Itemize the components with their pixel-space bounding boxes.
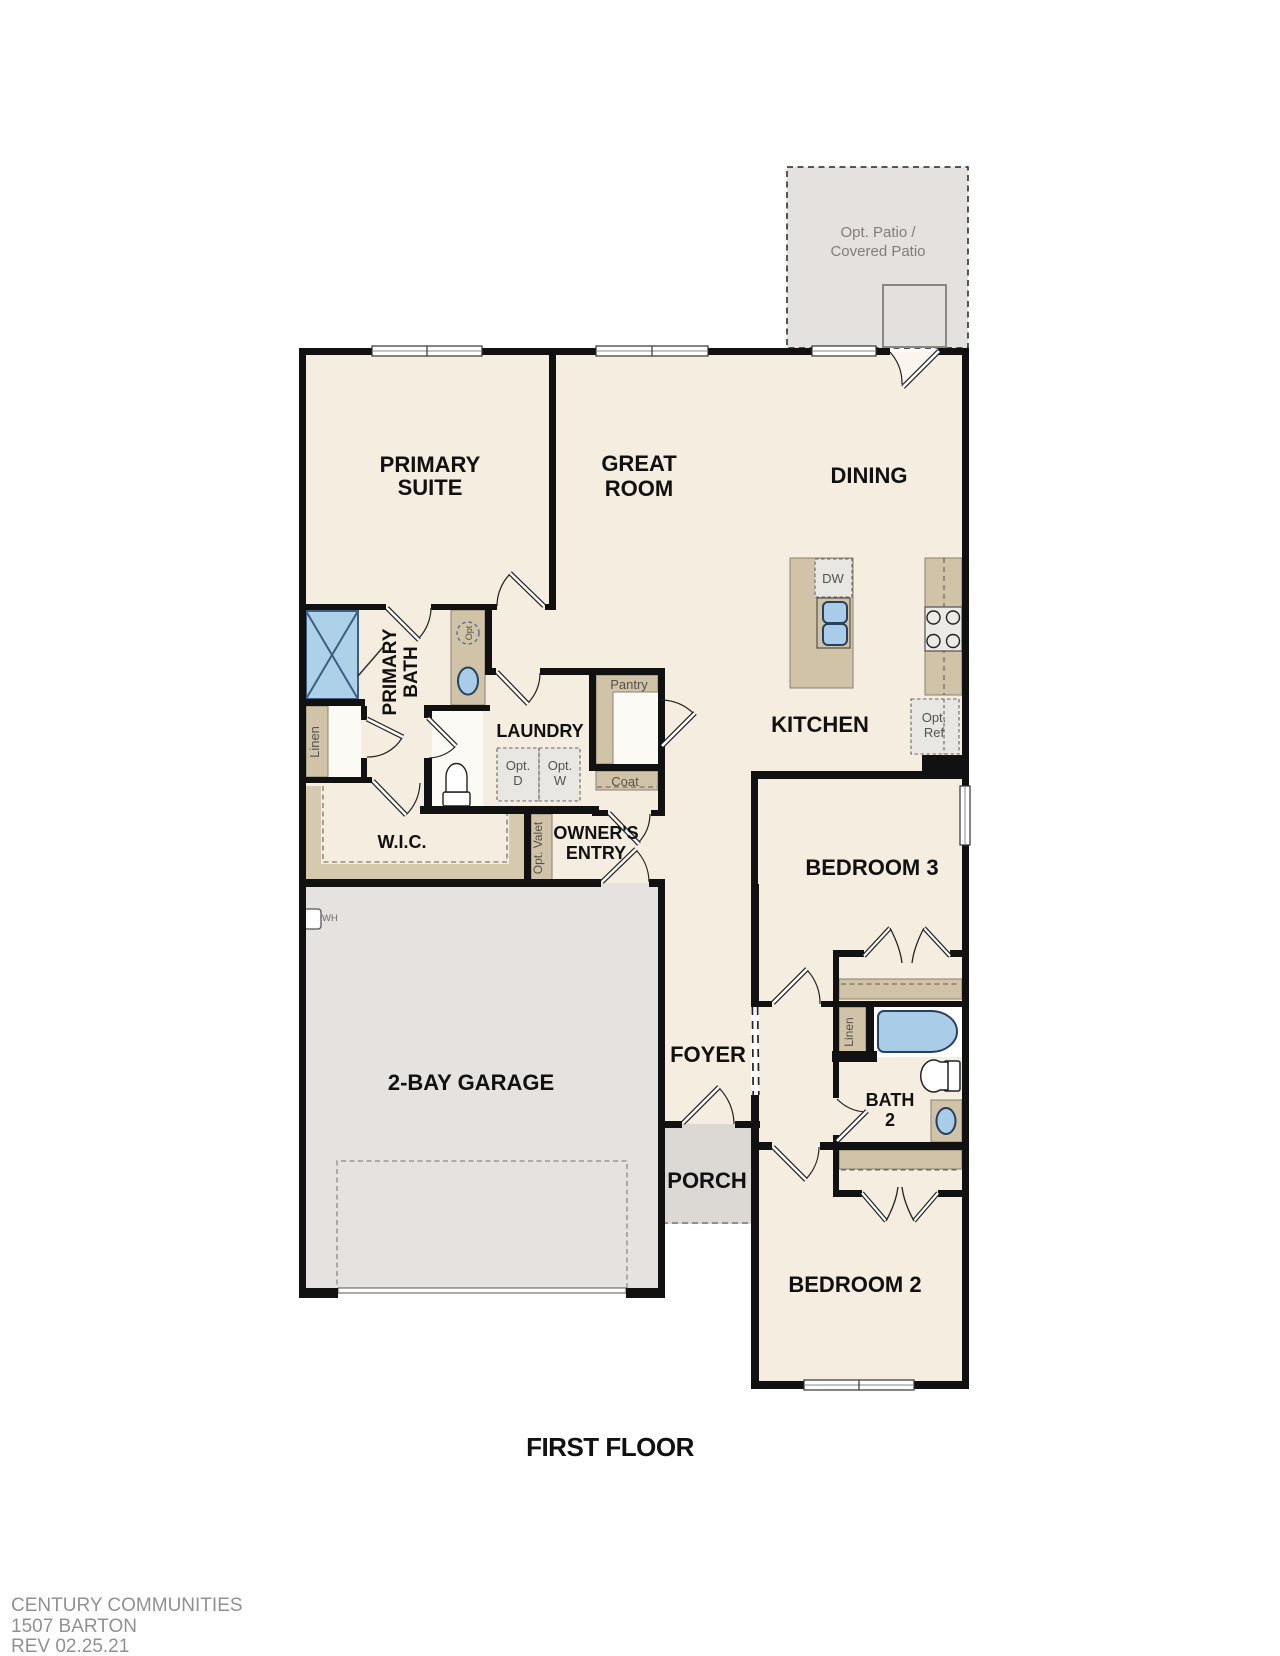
svg-text:Opt: Opt — [464, 625, 474, 640]
svg-text:Opt.: Opt. — [506, 758, 531, 773]
svg-text:BATH: BATH — [401, 646, 422, 697]
svg-text:Covered Patio: Covered Patio — [830, 243, 925, 260]
svg-text:Linen: Linen — [307, 726, 322, 758]
svg-text:BATH: BATH — [866, 1090, 915, 1110]
svg-text:CENTURY COMMUNITIES: CENTURY COMMUNITIES — [11, 1595, 243, 1616]
svg-text:PORCH: PORCH — [667, 1168, 746, 1193]
svg-text:OWNER'S: OWNER'S — [553, 823, 638, 843]
svg-text:ROOM: ROOM — [605, 476, 673, 501]
svg-text:SUITE: SUITE — [398, 475, 463, 500]
svg-text:2: 2 — [885, 1110, 895, 1130]
svg-text:W: W — [554, 773, 567, 788]
svg-text:W.I.C.: W.I.C. — [378, 832, 427, 852]
svg-text:WH: WH — [322, 913, 338, 924]
svg-text:DINING: DINING — [831, 463, 908, 488]
svg-text:Opt. Valet: Opt. Valet — [531, 821, 545, 874]
svg-text:Pantry: Pantry — [610, 677, 648, 692]
svg-text:BEDROOM 2: BEDROOM 2 — [788, 1272, 921, 1297]
svg-text:Opt. Patio /: Opt. Patio / — [840, 224, 916, 241]
svg-text:D: D — [513, 773, 522, 788]
svg-text:DW: DW — [822, 571, 844, 586]
svg-text:BEDROOM 3: BEDROOM 3 — [805, 855, 938, 880]
svg-text:GREAT: GREAT — [601, 451, 677, 476]
svg-text:Linen: Linen — [842, 1017, 856, 1046]
svg-text:KITCHEN: KITCHEN — [771, 712, 869, 737]
svg-text:1507 BARTON: 1507 BARTON — [11, 1616, 137, 1637]
svg-text:Opt.: Opt. — [922, 710, 947, 725]
svg-text:FOYER: FOYER — [670, 1042, 746, 1067]
svg-text:Opt.: Opt. — [548, 758, 573, 773]
svg-text:PRIMARY: PRIMARY — [380, 452, 481, 477]
svg-text:PRIMARY: PRIMARY — [380, 628, 401, 715]
svg-text:REV 02.25.21: REV 02.25.21 — [11, 1636, 129, 1656]
svg-text:2-BAY GARAGE: 2-BAY GARAGE — [388, 1070, 554, 1095]
svg-text:FIRST FLOOR: FIRST FLOOR — [526, 1432, 695, 1462]
svg-text:LAUNDRY: LAUNDRY — [496, 721, 583, 741]
svg-text:Ref: Ref — [924, 725, 945, 740]
svg-text:ENTRY: ENTRY — [566, 843, 626, 863]
